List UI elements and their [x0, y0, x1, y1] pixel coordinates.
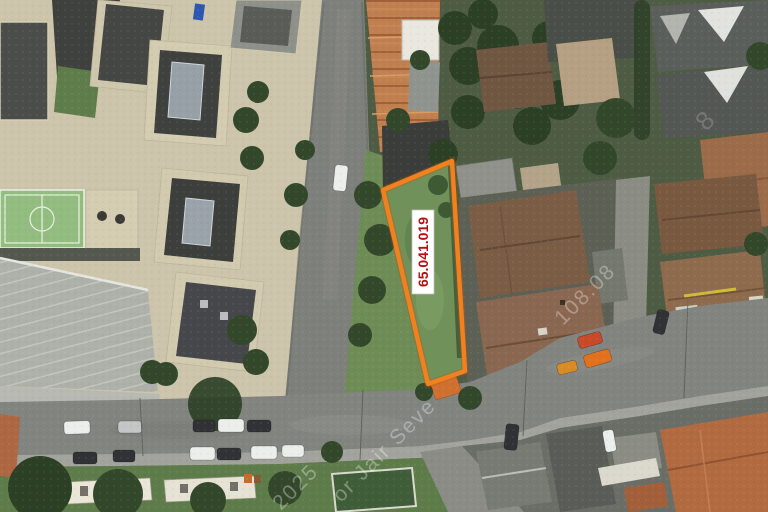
parcel-label: 65.041.019	[412, 210, 434, 294]
aerial-map-viewport[interactable]: 2025 or Jair Seve 108.08 8 65.041.019	[0, 0, 768, 512]
aerial-imagery[interactable]: 2025 or Jair Seve 108.08 8 65.041.019	[0, 0, 768, 512]
parcel-label-text: 65.041.019	[415, 217, 431, 287]
